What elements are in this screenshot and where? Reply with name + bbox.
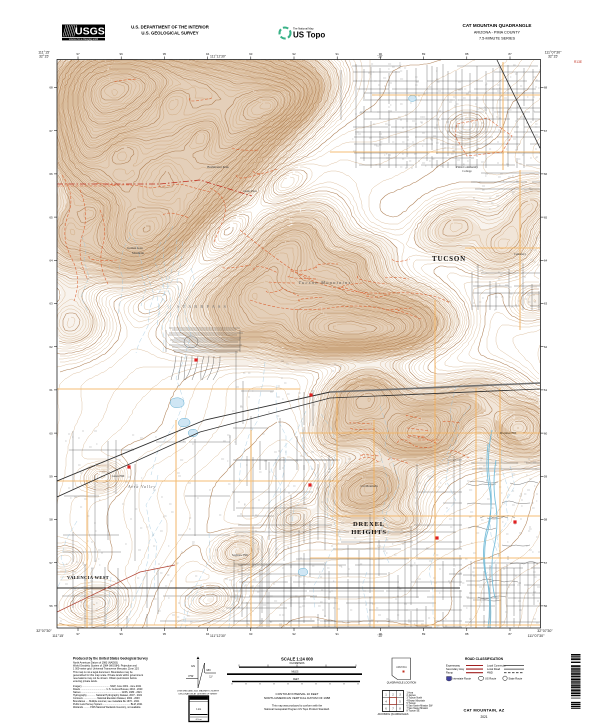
svg-text:4WD: 4WD	[487, 671, 493, 675]
svg-text:Golden Gate: Golden Gate	[127, 246, 143, 250]
svg-text:60: 60	[544, 431, 548, 435]
svg-text:97: 97	[76, 632, 80, 636]
svg-text:56: 56	[544, 604, 548, 608]
svg-text:92: 92	[292, 52, 296, 56]
svg-text:32°15': 32°15'	[548, 55, 558, 59]
svg-text:Gates Pass: Gates Pass	[243, 189, 257, 193]
svg-text:ARIZONA - PIMA COUNTY: ARIZONA - PIMA COUNTY	[474, 31, 521, 35]
svg-text:4 Brown Mountain: 4 Brown Mountain	[407, 699, 426, 702]
svg-text:0.5 mi: 0.5 mi	[196, 719, 202, 721]
svg-text:DECLINATION AT CENTER OF SHEET: DECLINATION AT CENTER OF SHEET	[179, 693, 218, 696]
svg-text:science for a changing world: science for a changing world	[69, 38, 99, 41]
svg-text:CAT MOUNTAIN QUADRANGLE: CAT MOUNTAIN QUADRANGLE	[463, 23, 532, 28]
svg-text:59: 59	[544, 475, 548, 479]
svg-text:Interstate Route: Interstate Route	[453, 677, 472, 681]
svg-text:US Topo: US Topo	[293, 31, 325, 40]
svg-text:88: 88	[465, 632, 469, 636]
svg-text:Martinez Hill: Martinez Hill	[500, 431, 517, 435]
svg-text:91: 91	[336, 632, 340, 636]
svg-text:89: 89	[422, 632, 426, 636]
svg-text:State Route: State Route	[509, 677, 523, 681]
svg-text:Cat Mountain: Cat Mountain	[360, 484, 378, 488]
svg-text:96: 96	[120, 632, 124, 636]
svg-text:DREXEL: DREXEL	[353, 521, 385, 528]
svg-text:HEIGHTS: HEIGHTS	[351, 529, 387, 536]
svg-text:GN: GN	[191, 664, 195, 668]
svg-text:97: 97	[76, 52, 80, 56]
svg-text:65: 65	[544, 215, 548, 219]
svg-text:FEET: FEET	[293, 679, 299, 681]
svg-text:87: 87	[508, 632, 512, 636]
svg-text:S T A R R P A S S: S T A R R P A S S	[177, 304, 227, 309]
svg-text:R13E: R13E	[574, 60, 582, 64]
svg-text:MN: MN	[206, 668, 210, 672]
svg-text:94: 94	[206, 632, 210, 636]
svg-text:8 Tucson SE: 8 Tucson SE	[407, 711, 420, 713]
svg-text:93: 93	[249, 632, 253, 636]
svg-text:61: 61	[49, 388, 53, 392]
svg-text:VALENCIA WEST: VALENCIA WEST	[67, 575, 109, 580]
svg-text:111°15': 111°15'	[38, 51, 50, 55]
svg-text:111°12'30": 111°12'30"	[210, 634, 227, 638]
svg-text:7 San Xavier Mission: 7 San Xavier Mission	[407, 707, 429, 710]
svg-text:Ramp: Ramp	[446, 671, 453, 675]
svg-text:6 San Xavier Mission SW: 6 San Xavier Mission SW	[407, 705, 434, 708]
svg-text:61: 61	[544, 388, 548, 392]
svg-text:2021: 2021	[480, 715, 487, 719]
svg-text:111°15': 111°15'	[52, 634, 64, 638]
svg-text:57: 57	[544, 561, 548, 565]
svg-text:Local Connector: Local Connector	[487, 664, 506, 668]
svg-text:57: 57	[49, 561, 53, 565]
svg-text:entering private lands.: entering private lands.	[73, 680, 98, 683]
svg-text:1 km: 1 km	[196, 709, 201, 711]
svg-text:Mountain: Mountain	[132, 251, 144, 255]
svg-text:62: 62	[544, 345, 548, 349]
svg-text:111°07'30": 111°07'30"	[545, 51, 563, 55]
svg-text:32°07'30": 32°07'30"	[537, 629, 553, 633]
svg-text:Secondary Hwy: Secondary Hwy	[446, 667, 465, 671]
svg-text:88: 88	[465, 52, 469, 56]
svg-text:64: 64	[544, 259, 548, 263]
svg-text:TUCSON: TUCSON	[432, 255, 466, 263]
svg-text:1 Avra: 1 Avra	[407, 692, 414, 695]
svg-text:ADJOINING QUADRANGLES: ADJOINING QUADRANGLES	[378, 713, 409, 716]
svg-text:U.S. GEOLOGICAL SURVEY: U.S. GEOLOGICAL SURVEY	[141, 31, 198, 36]
svg-text:64: 64	[49, 259, 53, 263]
svg-text:93: 93	[249, 52, 253, 56]
svg-text:11°: 11°	[209, 676, 212, 679]
svg-text:Bushmaster Peak: Bushmaster Peak	[207, 165, 229, 169]
svg-text:68: 68	[544, 86, 548, 90]
svg-text:UTM GRID AND 2021 MAGNETIC NOR: UTM GRID AND 2021 MAGNETIC NORTH	[177, 690, 219, 693]
svg-text:56: 56	[49, 604, 53, 608]
svg-text:'10': '10'	[377, 55, 382, 59]
svg-text:95: 95	[163, 52, 167, 56]
svg-text:32°07'30": 32°07'30"	[36, 629, 52, 633]
svg-text:59: 59	[49, 475, 53, 479]
svg-text:65: 65	[49, 215, 53, 219]
svg-text:Tucson Mountains: Tucson Mountains	[298, 280, 351, 285]
svg-text:58: 58	[49, 518, 53, 522]
svg-text:U.S. DEPARTMENT OF THE INTERIO: U.S. DEPARTMENT OF THE INTERIOR	[131, 25, 210, 30]
svg-text:63: 63	[544, 302, 548, 306]
svg-text:58: 58	[544, 518, 548, 522]
svg-text:Produced by the United States: Produced by the United States Geological…	[73, 657, 148, 661]
svg-text:89: 89	[422, 52, 426, 56]
svg-text:62: 62	[49, 345, 53, 349]
svg-text:ROAD CLASSIFICATION: ROAD CLASSIFICATION	[465, 657, 504, 661]
svg-text:KILOMETERS: KILOMETERS	[290, 663, 305, 665]
svg-text:QUADRANGLE LOCATION: QUADRANGLE LOCATION	[387, 682, 417, 685]
svg-text:66: 66	[544, 172, 548, 176]
svg-text:94: 94	[206, 52, 210, 56]
svg-text:3 Tucson North: 3 Tucson North	[407, 697, 423, 700]
svg-text:66: 66	[49, 172, 53, 176]
svg-text:Local Road: Local Road	[487, 667, 501, 671]
svg-text:111°07'30": 111°07'30"	[528, 634, 546, 638]
svg-text:Saginaw Hill: Saginaw Hill	[232, 553, 248, 557]
svg-text:National Geospatial Program US: National Geospatial Program US Topo Prod…	[264, 707, 330, 711]
svg-text:College: College	[462, 169, 472, 173]
svg-text:67: 67	[49, 129, 53, 133]
svg-text:60: 60	[49, 431, 53, 435]
svg-text:95: 95	[163, 632, 167, 636]
svg-text:67: 67	[544, 129, 548, 133]
svg-text:32°15': 32°15'	[39, 55, 49, 59]
svg-text:Avra Valley: Avra Valley	[127, 484, 156, 489]
svg-text:NORTH AMERICAN VERTICAL DATUM: NORTH AMERICAN VERTICAL DATUM OF 1988	[264, 696, 331, 700]
svg-text:87: 87	[508, 52, 512, 56]
svg-text:96: 96	[120, 52, 124, 56]
svg-text:68: 68	[49, 86, 53, 90]
svg-text:USGS: USGS	[75, 26, 105, 38]
svg-text:ARIZONA: ARIZONA	[396, 666, 407, 669]
svg-text:111°12'30": 111°12'30"	[210, 55, 227, 59]
svg-text:0°52': 0°52'	[188, 675, 194, 678]
svg-text:SCALE 1:24 000: SCALE 1:24 000	[281, 657, 314, 662]
svg-text:7.5-MINUTE SERIES: 7.5-MINUTE SERIES	[479, 37, 516, 41]
svg-text:Expressway: Expressway	[446, 664, 461, 668]
svg-text:US Route: US Route	[485, 677, 497, 681]
svg-text:Wetlands ......... FWS Nationa: Wetlands ......... FWS National Wetlands…	[73, 706, 141, 709]
svg-text:This map was produced to confo: This map was produced to conform with th…	[272, 704, 323, 708]
svg-text:MILES: MILES	[292, 672, 299, 674]
svg-text:Gates Hill: Gates Hill	[112, 474, 125, 478]
svg-text:92: 92	[292, 632, 296, 636]
svg-text:63: 63	[49, 302, 53, 306]
svg-text:CAT MOUNTAIN, AZ: CAT MOUNTAIN, AZ	[464, 708, 505, 713]
svg-text:91: 91	[336, 52, 340, 56]
svg-text:'10': '10'	[377, 634, 382, 638]
svg-text:Cemetery: Cemetery	[514, 252, 526, 256]
